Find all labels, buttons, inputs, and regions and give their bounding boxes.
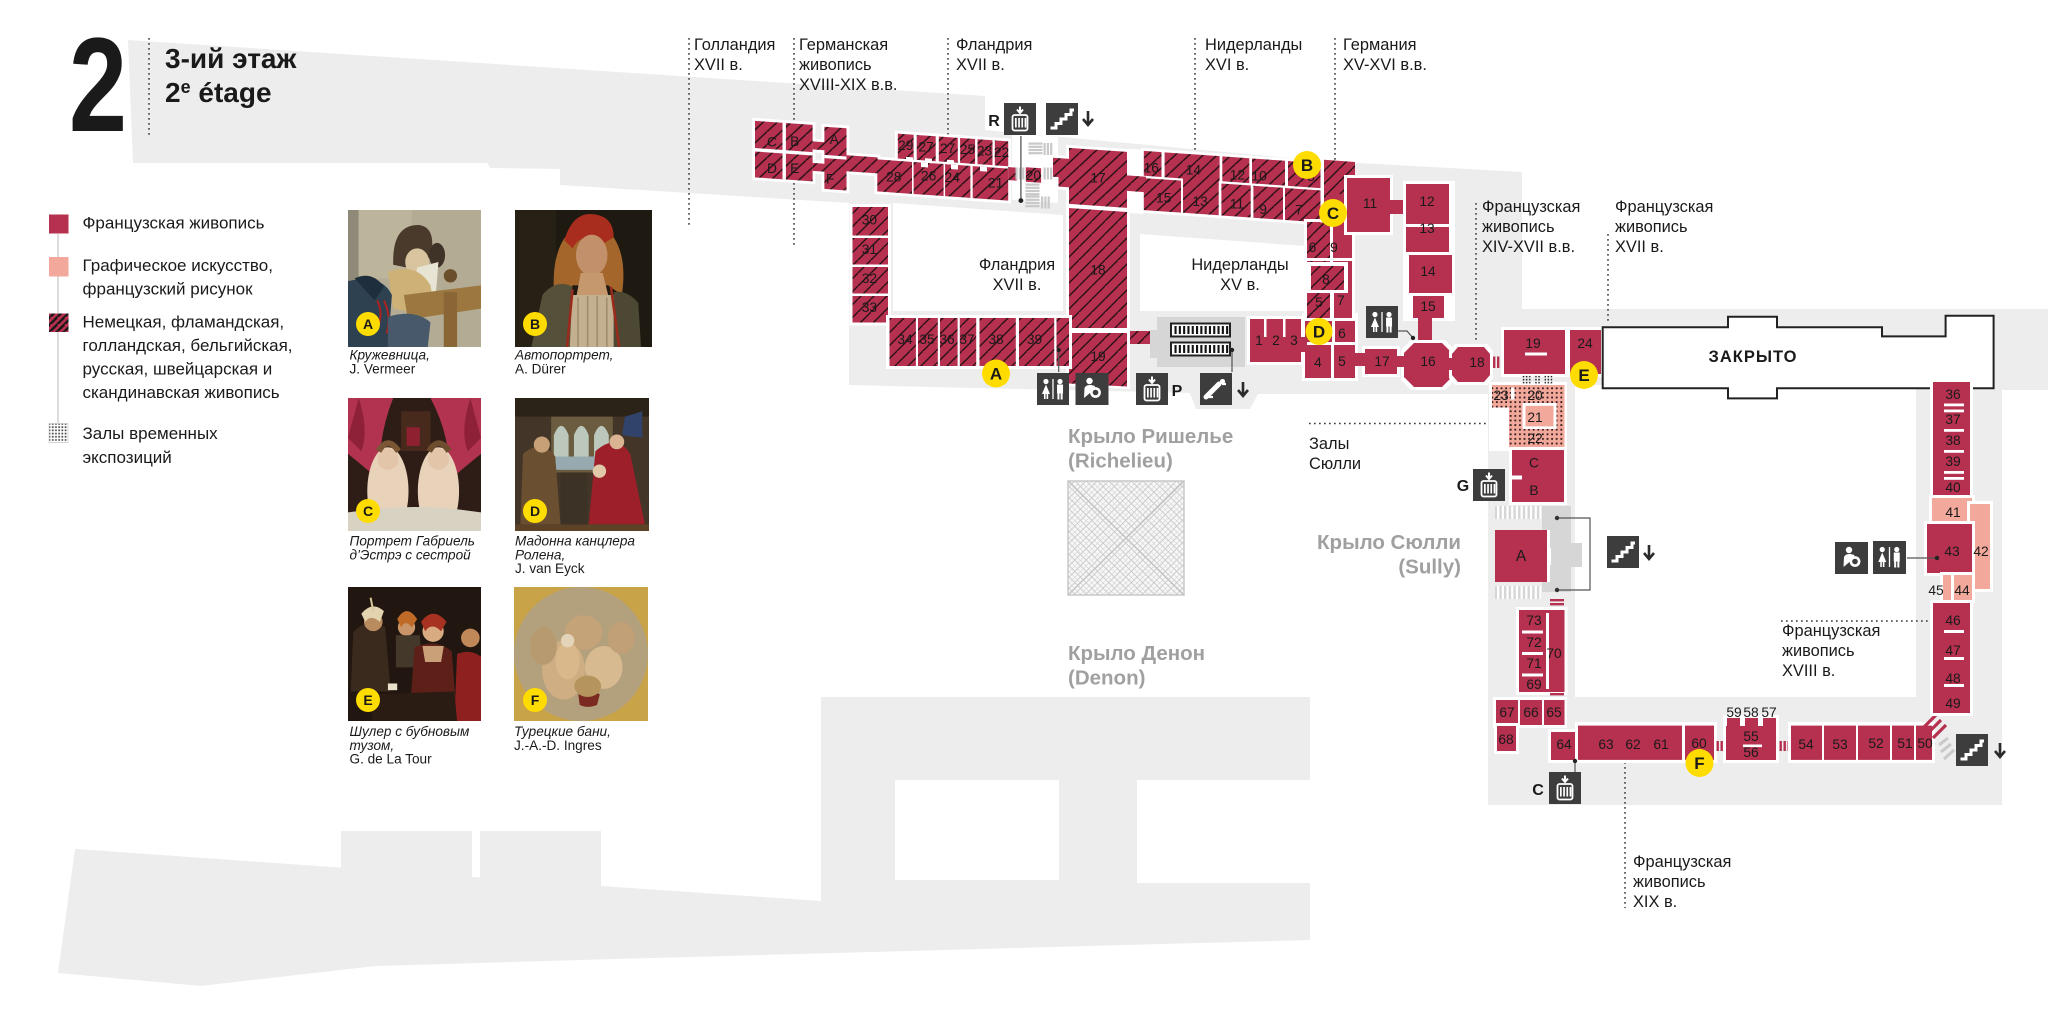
- svg-text:Нидерланды: Нидерланды: [1205, 36, 1302, 54]
- svg-text:51: 51: [1897, 736, 1912, 751]
- svg-text:15: 15: [1156, 191, 1172, 206]
- svg-text:42: 42: [1973, 544, 1988, 559]
- svg-text:36: 36: [939, 332, 955, 347]
- svg-text:71: 71: [1526, 656, 1541, 671]
- svg-text:Ролена,: Ролена,: [515, 547, 565, 562]
- svg-text:Голландия: Голландия: [694, 36, 775, 54]
- svg-text:Французская: Французская: [1482, 198, 1580, 216]
- svg-text:19: 19: [1525, 336, 1541, 351]
- svg-text:экспозиций: экспозиций: [83, 448, 172, 467]
- svg-text:B: B: [790, 134, 799, 149]
- svg-text:C: C: [363, 503, 373, 519]
- svg-text:52: 52: [1868, 736, 1883, 751]
- svg-text:д’Эстрэ с сестрой: д’Эстрэ с сестрой: [350, 547, 472, 562]
- svg-text:39: 39: [1945, 454, 1961, 469]
- svg-text:73: 73: [1526, 613, 1542, 628]
- svg-text:20: 20: [1026, 168, 1042, 183]
- svg-text:B: B: [1301, 156, 1313, 175]
- svg-text:Французская: Французская: [1633, 853, 1731, 871]
- svg-text:Германия: Германия: [1343, 36, 1416, 54]
- svg-text:Крыло Денон: Крыло Денон: [1068, 642, 1205, 665]
- svg-text:5: 5: [1315, 295, 1323, 310]
- svg-text:4: 4: [1314, 355, 1322, 370]
- svg-text:27: 27: [940, 141, 955, 156]
- svg-text:27: 27: [918, 140, 933, 155]
- svg-text:24: 24: [945, 170, 961, 185]
- svg-text:68: 68: [1498, 732, 1514, 747]
- svg-text:38: 38: [1945, 433, 1961, 448]
- svg-text:Германская: Германская: [799, 36, 888, 54]
- svg-text:(Denon): (Denon): [1068, 667, 1145, 690]
- svg-text:живопись: живопись: [1615, 218, 1688, 236]
- svg-text:16: 16: [1144, 161, 1160, 176]
- svg-text:29: 29: [898, 138, 914, 153]
- svg-text:40: 40: [1945, 480, 1961, 495]
- svg-text:7: 7: [1295, 202, 1303, 217]
- svg-text:XVII в.: XVII в.: [993, 276, 1042, 294]
- svg-text:16: 16: [1420, 354, 1436, 369]
- svg-text:53: 53: [1832, 737, 1848, 752]
- svg-text:голландская, бельгийская,: голландская, бельгийская,: [83, 336, 293, 355]
- svg-text:XV-XVI в.в.: XV-XVI в.в.: [1343, 56, 1427, 74]
- svg-text:41: 41: [1945, 505, 1960, 520]
- svg-text:31: 31: [862, 242, 877, 257]
- svg-text:7: 7: [1337, 293, 1345, 308]
- svg-text:45: 45: [1928, 583, 1944, 598]
- svg-text:26: 26: [921, 169, 937, 184]
- svg-text:1: 1: [1255, 333, 1263, 348]
- svg-text:21: 21: [988, 176, 1003, 191]
- svg-text:XIX в.: XIX в.: [1633, 893, 1677, 911]
- svg-text:11: 11: [1230, 196, 1244, 211]
- svg-text:69: 69: [1526, 677, 1542, 692]
- svg-text:E: E: [1578, 366, 1589, 385]
- svg-text:D: D: [1313, 323, 1325, 342]
- svg-text:15: 15: [1420, 299, 1436, 314]
- svg-text:русская, швейцарская и: русская, швейцарская и: [83, 360, 273, 379]
- svg-text:65: 65: [1546, 705, 1562, 720]
- svg-text:25: 25: [960, 142, 976, 157]
- svg-text:Залы временных: Залы временных: [83, 424, 219, 443]
- svg-text:A: A: [363, 316, 373, 332]
- svg-text:6: 6: [1309, 240, 1317, 255]
- svg-text:9: 9: [1330, 240, 1338, 255]
- svg-text:33: 33: [862, 300, 878, 315]
- svg-text:Французская живопись: Французская живопись: [83, 213, 265, 232]
- svg-text:D: D: [767, 161, 777, 176]
- svg-text:21: 21: [1527, 410, 1542, 425]
- svg-text:62: 62: [1625, 737, 1640, 752]
- svg-text:тузом,: тузом,: [350, 738, 395, 753]
- svg-text:66: 66: [1523, 705, 1539, 720]
- svg-text:22: 22: [994, 145, 1009, 160]
- svg-text:37: 37: [1945, 412, 1960, 427]
- svg-text:72: 72: [1526, 635, 1541, 650]
- svg-text:18: 18: [1469, 355, 1485, 370]
- svg-text:8: 8: [1322, 272, 1330, 287]
- svg-text:живопись: живопись: [799, 56, 872, 74]
- svg-text:F: F: [1694, 754, 1704, 773]
- svg-text:живопись: живопись: [1633, 873, 1706, 891]
- svg-text:30: 30: [862, 213, 878, 228]
- svg-text:Крыло Сюлли: Крыло Сюлли: [1317, 531, 1461, 554]
- svg-text:XVII в.: XVII в.: [956, 56, 1005, 74]
- svg-text:34: 34: [897, 332, 913, 347]
- svg-text:32: 32: [862, 271, 877, 286]
- svg-text:Фландрия: Фландрия: [956, 36, 1032, 54]
- svg-text:17: 17: [1090, 171, 1105, 186]
- svg-text:J. Vermeer: J. Vermeer: [350, 361, 416, 376]
- svg-text:A: A: [1516, 548, 1527, 565]
- svg-text:XVI в.: XVI в.: [1205, 56, 1249, 74]
- svg-text:F: F: [826, 172, 834, 187]
- svg-text:38: 38: [988, 332, 1004, 347]
- svg-text:C: C: [1532, 782, 1544, 799]
- svg-text:6: 6: [1338, 326, 1346, 341]
- svg-text:44: 44: [1954, 583, 1970, 598]
- svg-text:2: 2: [69, 11, 127, 160]
- svg-text:46: 46: [1945, 613, 1961, 628]
- svg-text:A: A: [990, 365, 1002, 384]
- svg-text:Шулер с бубновым: Шулер с бубновым: [350, 724, 471, 739]
- svg-text:C: C: [1327, 204, 1339, 223]
- svg-text:Французская: Французская: [1615, 198, 1713, 216]
- svg-text:A. Dürer: A. Dürer: [515, 361, 566, 376]
- svg-text:59: 59: [1726, 705, 1742, 720]
- svg-text:9: 9: [1259, 202, 1267, 217]
- svg-text:D: D: [530, 503, 540, 519]
- svg-text:22: 22: [1527, 431, 1542, 446]
- svg-text:23: 23: [1493, 388, 1509, 403]
- svg-text:14: 14: [1420, 264, 1436, 279]
- svg-text:20: 20: [1527, 388, 1543, 403]
- svg-text:14: 14: [1186, 163, 1202, 178]
- svg-text:R: R: [988, 113, 1000, 130]
- svg-text:B: B: [530, 316, 540, 332]
- svg-text:23: 23: [977, 144, 993, 159]
- svg-text:63: 63: [1598, 737, 1614, 752]
- svg-text:J.-A.-D. Ingres: J.-A.-D. Ingres: [514, 738, 602, 753]
- svg-text:49: 49: [1945, 696, 1961, 711]
- svg-text:B: B: [1529, 483, 1538, 498]
- svg-text:28: 28: [886, 169, 902, 184]
- svg-text:54: 54: [1798, 737, 1814, 752]
- svg-text:XVII в.: XVII в.: [1615, 238, 1664, 256]
- svg-text:70: 70: [1546, 646, 1562, 661]
- svg-text:Графическое искусство,: Графическое искусство,: [83, 256, 273, 275]
- svg-text:36: 36: [1945, 387, 1961, 402]
- svg-text:Немецкая, фламандская,: Немецкая, фламандская,: [83, 313, 285, 332]
- svg-text:48: 48: [1945, 671, 1961, 686]
- svg-text:43: 43: [1944, 544, 1960, 559]
- svg-text:Залы: Залы: [1309, 435, 1349, 453]
- svg-text:37: 37: [959, 332, 974, 347]
- svg-text:5: 5: [1338, 354, 1346, 369]
- svg-text:Французская: Французская: [1782, 622, 1880, 640]
- svg-text:французский рисунок: французский рисунок: [83, 279, 254, 298]
- svg-text:60: 60: [1691, 736, 1707, 751]
- svg-text:58: 58: [1743, 705, 1759, 720]
- svg-text:C: C: [767, 135, 777, 150]
- svg-text:Нидерланды: Нидерланды: [1191, 256, 1288, 274]
- svg-text:17: 17: [1374, 354, 1389, 369]
- svg-text:Портрет Габриель: Портрет Габриель: [350, 534, 475, 549]
- svg-text:47: 47: [1945, 643, 1960, 658]
- svg-text:55: 55: [1743, 729, 1759, 744]
- svg-text:P: P: [1172, 383, 1183, 400]
- svg-text:живопись: живопись: [1782, 642, 1855, 660]
- svg-text:19: 19: [1090, 349, 1106, 364]
- svg-text:(Richelieu): (Richelieu): [1068, 450, 1173, 473]
- svg-text:живопись: живопись: [1482, 218, 1555, 236]
- svg-text:(Sully): (Sully): [1398, 556, 1461, 579]
- svg-text:56: 56: [1743, 745, 1759, 760]
- svg-text:12: 12: [1419, 194, 1434, 209]
- svg-text:61: 61: [1653, 737, 1668, 752]
- svg-text:A: A: [830, 132, 840, 147]
- svg-text:12: 12: [1230, 168, 1245, 183]
- svg-text:11: 11: [1363, 196, 1377, 211]
- svg-text:C: C: [1529, 456, 1539, 471]
- svg-text:Крыло Ришелье: Крыло Ришелье: [1068, 425, 1233, 448]
- svg-text:E: E: [363, 692, 372, 708]
- svg-text:Сюлли: Сюлли: [1309, 455, 1361, 473]
- svg-text:XVIII-XIX в.в.: XVIII-XIX в.в.: [799, 76, 897, 94]
- svg-text:J. van Eyck: J. van Eyck: [515, 561, 585, 576]
- svg-text:Фландрия: Фландрия: [979, 256, 1055, 274]
- svg-text:Кружевница,: Кружевница,: [350, 348, 430, 363]
- svg-text:XVIII в.: XVIII в.: [1782, 662, 1835, 680]
- svg-text:XV в.: XV в.: [1220, 276, 1260, 294]
- svg-text:G. de La Tour: G. de La Tour: [350, 752, 433, 767]
- svg-text:10: 10: [1251, 169, 1267, 184]
- svg-text:Автопортрет,: Автопортрет,: [514, 348, 613, 363]
- svg-text:F: F: [531, 692, 540, 708]
- svg-text:2: 2: [1272, 333, 1280, 348]
- svg-text:57: 57: [1761, 705, 1776, 720]
- svg-text:50: 50: [1917, 736, 1933, 751]
- svg-text:ЗАКРЫТО: ЗАКРЫТО: [1709, 348, 1798, 366]
- svg-text:XVII в.: XVII в.: [694, 56, 743, 74]
- svg-text:35: 35: [919, 332, 935, 347]
- svg-text:13: 13: [1192, 194, 1208, 209]
- svg-text:39: 39: [1027, 332, 1043, 347]
- svg-text:G: G: [1457, 478, 1469, 495]
- svg-text:3-ий этаж: 3-ий этаж: [165, 43, 297, 74]
- svg-text:67: 67: [1499, 705, 1514, 720]
- svg-text:E: E: [790, 161, 799, 176]
- svg-text:Мадонна канцлера: Мадонна канцлера: [515, 534, 635, 549]
- svg-text:XIV-XVII в.в.: XIV-XVII в.в.: [1482, 238, 1575, 256]
- svg-text:скандинавская живопись: скандинавская живопись: [83, 383, 280, 402]
- svg-text:18: 18: [1090, 263, 1106, 278]
- svg-text:Турецкие бани,: Турецкие бани,: [514, 724, 611, 739]
- svg-text:64: 64: [1556, 737, 1572, 752]
- svg-text:3: 3: [1290, 333, 1298, 348]
- svg-text:24: 24: [1577, 336, 1593, 351]
- svg-text:13: 13: [1419, 221, 1435, 236]
